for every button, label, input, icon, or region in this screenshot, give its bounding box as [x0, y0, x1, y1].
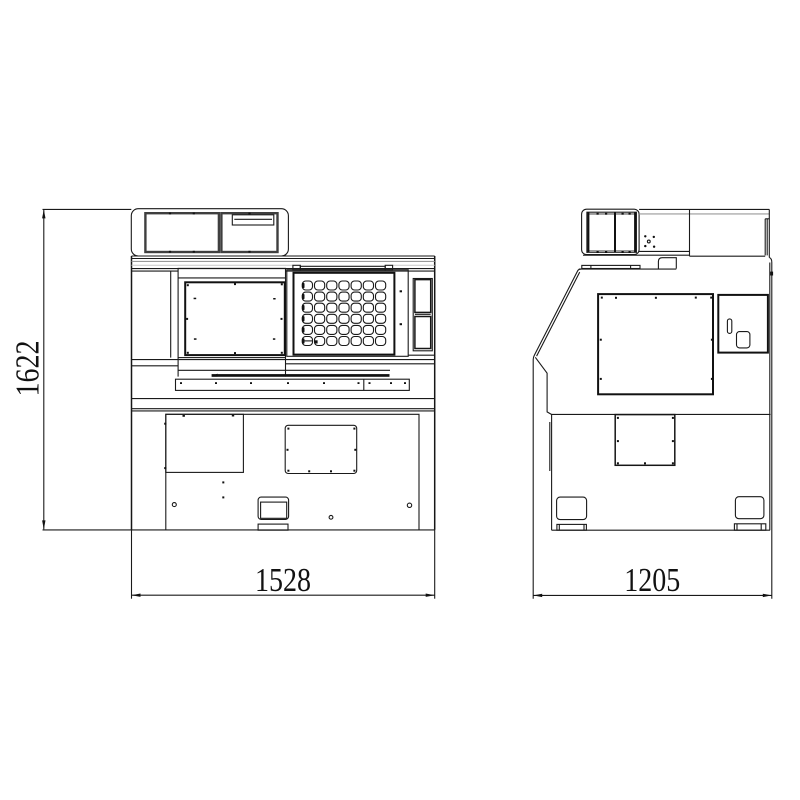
- svg-text:1205: 1205: [624, 562, 680, 599]
- svg-text:1528: 1528: [255, 562, 311, 599]
- svg-text:1622: 1622: [10, 341, 47, 397]
